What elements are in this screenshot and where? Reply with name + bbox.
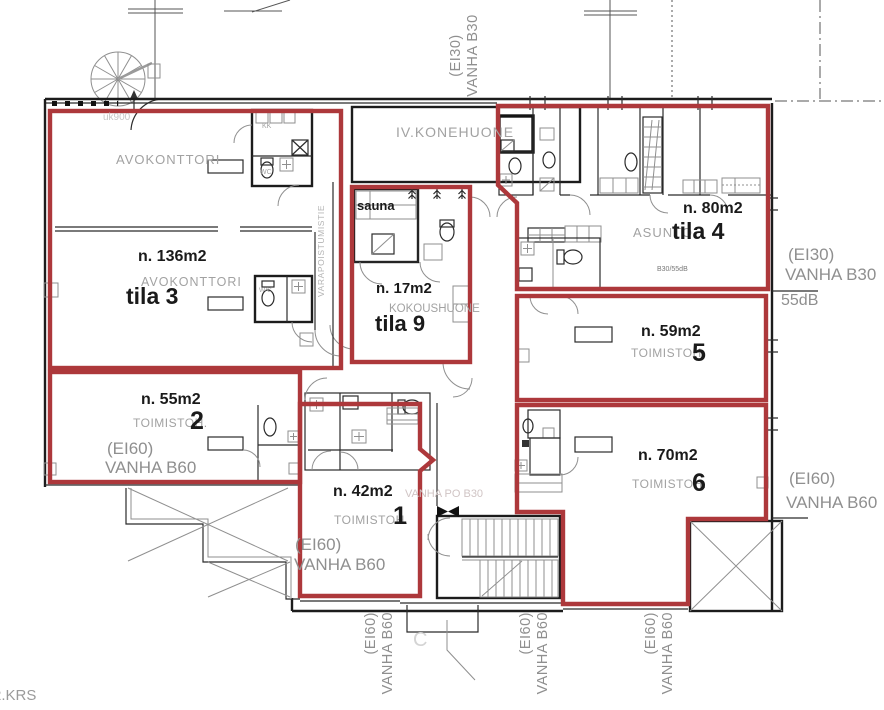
room2-number-label: 2: [190, 408, 204, 434]
fire-right-top-db: 55dB: [781, 293, 818, 310]
fire-right-top-2: VANHA B30: [785, 266, 876, 284]
fire-bottom-mid-vertical: (EI60) VANHA B60: [518, 612, 552, 706]
uk900-note: uk900: [103, 113, 130, 124]
fire-top-vertical: (EI30) VANHA B30: [448, 13, 482, 98]
wc-mid-label: W/C: [259, 288, 272, 295]
floor-plan-drawing: [0, 0, 884, 710]
floor-plan-canvas: AVOKONTTORI uk900 KK WC IV.KONEHUONE sau…: [0, 0, 884, 710]
fire-right-bottom-2: VANHA B60: [786, 494, 877, 512]
fire-bottom-right-vertical: (EI60) VANHA B60: [643, 612, 677, 706]
iv-konehuone-label: IV.KONEHUONE: [396, 125, 514, 140]
tila3-name-label: tila 3: [126, 284, 178, 308]
zone-tila4: [498, 106, 768, 289]
room1-area-label: n. 42m2: [333, 484, 393, 501]
room1-number-label: 1: [393, 503, 407, 529]
avokonttori-upper-label: AVOKONTTORI: [116, 153, 220, 167]
grid-lines: [128, 0, 884, 101]
room2-fire-1: (EI60): [107, 440, 153, 458]
terrace-roof: [45, 485, 300, 599]
tila9-name-label: tila 9: [375, 312, 425, 335]
fire-right-top-1: (EI30): [788, 246, 834, 264]
room5-interior: [516, 296, 612, 362]
tila9-area-label: n. 17m2: [376, 281, 432, 297]
room1-wc-block: [305, 378, 472, 470]
room5-number-label: 5: [692, 340, 706, 366]
tila3-area-label: n. 136m2: [138, 249, 206, 266]
tila4-acoustic-note: B30/55dB: [657, 266, 688, 273]
kk-wc-block: [234, 110, 312, 206]
room2-fire-2: VANHA B60: [105, 459, 196, 477]
tila4-name-label: tila 4: [672, 219, 724, 243]
room1-fire-1: (EI60): [295, 536, 341, 554]
wc-upper-label: WC: [260, 169, 272, 176]
shaft-x: [690, 521, 782, 611]
room1-fire-2: VANHA B60: [294, 556, 385, 574]
fire-bottom-left-vertical: (EI60) VANHA B60: [363, 612, 397, 706]
room6-number-label: 6: [692, 470, 706, 496]
floor-label: 2.KRS: [0, 688, 36, 704]
sauna-label: sauna: [357, 199, 395, 213]
kk-label: KK: [262, 123, 271, 130]
old-door-note: VANHA PO B30: [405, 489, 483, 501]
fire-right-bottom-1: (EI60): [789, 470, 835, 488]
grid-letter-c: C: [413, 630, 427, 651]
room6-area-label: n. 70m2: [638, 448, 698, 465]
escape-route-label: VARAPOISTUMISTIE: [316, 205, 326, 297]
tila4-area-label: n. 80m2: [683, 201, 743, 218]
iv-konehuone-walls: [352, 107, 580, 182]
